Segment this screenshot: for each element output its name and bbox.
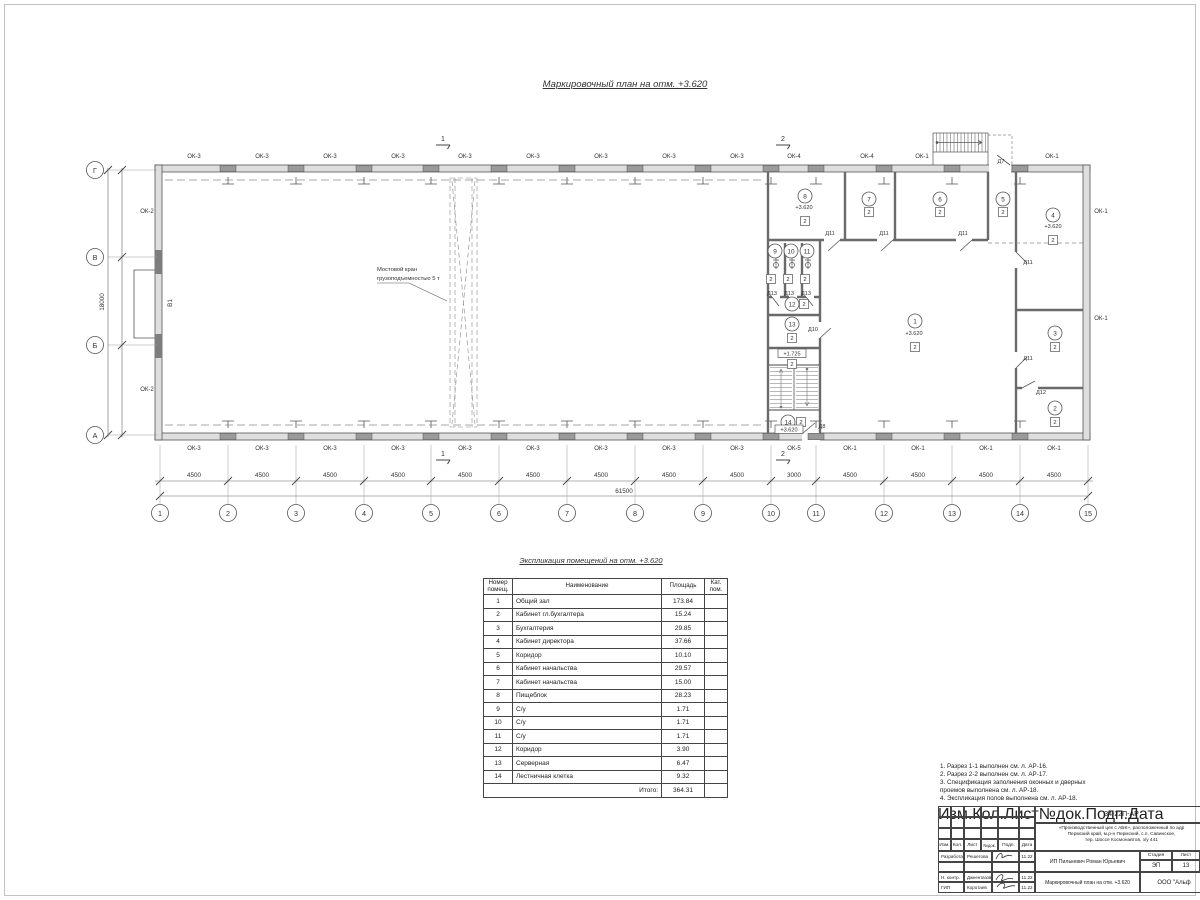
window-label: ОК-4 <box>860 154 874 160</box>
cell-number: 7 <box>484 676 513 690</box>
room-number-bubble: 4 <box>1046 208 1060 222</box>
doc-number: 34-22П-АР <box>1035 806 1200 823</box>
room-category: 2 <box>800 300 809 309</box>
room-number-bubble: 3 <box>1048 326 1062 340</box>
pier <box>220 165 236 439</box>
cell-name: Кабинет начальства <box>513 662 662 676</box>
svg-text:2: 2 <box>769 277 772 283</box>
cell-cat <box>705 635 728 649</box>
date-gip: 11.22 <box>1019 882 1035 893</box>
svg-text:2: 2 <box>1051 238 1054 244</box>
cell-name: Общий зал <box>513 595 662 609</box>
room-category: 2 <box>767 275 776 284</box>
dimension-label: 4500 <box>594 472 609 479</box>
note-item: 1. Разрез 1-1 выполнен см. л. АР-16. <box>940 763 1196 771</box>
svg-text:3: 3 <box>294 509 298 518</box>
window-label: ОК-3 <box>255 446 269 452</box>
explication-table: Номер помещ. Наименование Площадь Кат. п… <box>483 578 728 798</box>
window-label: ОК-3 <box>594 154 608 160</box>
cell-cat <box>705 622 728 636</box>
table-row: 14 Лестничная клетка 9.32 <box>484 770 728 784</box>
cell-cat <box>705 770 728 784</box>
col-header-cat: Кат. пом. <box>705 579 728 595</box>
cell-number: 14 <box>484 770 513 784</box>
door-label: Д11 <box>958 231 968 237</box>
sheet-label: Лист <box>1172 851 1200 860</box>
cell-number: 1 <box>484 595 513 609</box>
window-label: ОК-3 <box>187 446 201 452</box>
door-label: Д10 <box>808 327 818 333</box>
svg-text:4: 4 <box>362 509 366 518</box>
dimension-label: 3000 <box>787 472 802 479</box>
svg-text:+3.620: +3.620 <box>780 428 797 434</box>
cell-name: С/у <box>513 730 662 744</box>
date-ncontr: 11.22 <box>1019 872 1035 882</box>
svg-text:2: 2 <box>1053 420 1056 426</box>
axis-bubble: 14 <box>1012 445 1029 522</box>
table-row: 10 С/у 1.71 <box>484 716 728 730</box>
windows-bottom: ОК-3ОК-3ОК-3ОК-3ОК-3ОК-3ОК-3ОК-3ОК-3ОК-5… <box>187 446 1061 452</box>
svg-text:2: 2 <box>786 277 789 283</box>
elevation-label-boxed: +3.620 <box>775 425 803 434</box>
cell-cat <box>705 662 728 676</box>
name-ncontr: Джеентазов <box>964 872 992 882</box>
role-developer: Разработал <box>938 851 964 862</box>
dimension-label: 4500 <box>662 472 677 479</box>
axis-bubble: 2 <box>220 445 237 522</box>
svg-text:7: 7 <box>867 196 871 203</box>
door-label: Д13 <box>801 291 811 297</box>
window-label: ОК-3 <box>323 446 337 452</box>
exterior-walls <box>155 165 1090 440</box>
total-row: Итого: 364.31 <box>484 784 728 798</box>
hdr-kol: Кол. <box>951 839 964 851</box>
room-category: 2 <box>801 217 810 226</box>
room-number-bubble: 1 <box>908 314 922 328</box>
plan-title: Маркировочный план на отм. +3.620 <box>455 79 795 90</box>
svg-text:2: 2 <box>913 345 916 351</box>
sheet-value: 13 <box>1172 860 1200 872</box>
cell-number: 4 <box>484 635 513 649</box>
hdr-izm: Изм. <box>938 839 951 851</box>
cell-name: Бухгалтерия <box>513 622 662 636</box>
svg-text:4: 4 <box>1051 212 1055 219</box>
cell-cat <box>705 743 728 757</box>
role-gip: ГИП <box>938 882 964 893</box>
door-label: Д11 <box>1023 260 1033 266</box>
explication-title: Экспликация помещений на отм. +3.620 <box>480 556 702 565</box>
room-category: 2 <box>788 334 797 343</box>
dimension-label: 4500 <box>1047 472 1062 479</box>
table-row: 6 Кабинет начальства 29.57 <box>484 662 728 676</box>
signature-squiggle <box>992 870 1020 893</box>
window-label: ОК-3 <box>662 446 676 452</box>
svg-text:2: 2 <box>803 277 806 283</box>
axis-bubble: 5 <box>423 445 440 522</box>
col-header-area: Площадь <box>662 579 705 595</box>
svg-text:12: 12 <box>788 301 796 308</box>
svg-text:2: 2 <box>781 136 785 143</box>
cell-name: Кабинет начальства <box>513 676 662 690</box>
dimension-label: 4500 <box>255 472 270 479</box>
svg-text:13: 13 <box>948 509 956 518</box>
svg-text:7: 7 <box>565 509 569 518</box>
gate-v1: В1 <box>134 250 174 358</box>
cell-cat <box>705 689 728 703</box>
section-marks: 1 1 2 2 <box>436 136 790 464</box>
cell-area: 9.32 <box>662 770 705 784</box>
stairs <box>770 365 818 410</box>
cell-area: 28.23 <box>662 689 705 703</box>
dimension-label: 4500 <box>979 472 994 479</box>
window-label: ОК-3 <box>730 154 744 160</box>
window-label: ОК-5 <box>787 446 801 452</box>
crane-rails <box>165 135 1083 427</box>
window-label: ОК-1 <box>1045 154 1059 160</box>
room-category: 2 <box>911 343 920 352</box>
window-label: ОК-3 <box>526 154 540 160</box>
room-number-bubble: 12 <box>785 297 799 311</box>
table-row: 11 С/у 1.71 <box>484 730 728 744</box>
pier <box>695 165 711 439</box>
cell-area: 173.84 <box>662 595 705 609</box>
window-label: ОК-3 <box>730 446 744 452</box>
axis-bubble: 9 <box>695 445 712 522</box>
window-label: ОК-1 <box>1047 446 1061 452</box>
cell-area: 1.71 <box>662 716 705 730</box>
svg-text:2: 2 <box>1001 210 1004 216</box>
window-label: ОК-1 <box>911 446 925 452</box>
svg-text:2: 2 <box>790 362 793 368</box>
door-label: Д13 <box>784 291 794 297</box>
cell-area: 6.47 <box>662 757 705 771</box>
svg-text:14: 14 <box>1016 509 1024 518</box>
explication-header: Номер помещ. Наименование Площадь Кат. п… <box>484 579 728 595</box>
cell-area: 10.10 <box>662 649 705 663</box>
axis-bubble: 12 <box>876 445 893 522</box>
total-label: Итого: <box>484 784 662 798</box>
cell-area: 37.66 <box>662 635 705 649</box>
cell-cat <box>705 649 728 663</box>
total-value: 364.31 <box>662 784 705 798</box>
cell-number: 11 <box>484 730 513 744</box>
cell-cat <box>705 757 728 771</box>
pier <box>491 165 507 439</box>
dims-bottom: 4500450045004500450045004500450045003000… <box>187 472 1062 479</box>
room-category: 2 <box>784 275 793 284</box>
cell-number: 5 <box>484 649 513 663</box>
crane-annotation: Мостовой кран грузоподъемностью 5 т <box>377 266 447 301</box>
door-label: Д11 <box>879 231 889 237</box>
axis-bubble: 15 <box>1080 445 1097 522</box>
table-row: 5 Коридор 10.10 <box>484 649 728 663</box>
room-number-bubble: 6 <box>933 192 947 206</box>
room-category: 2 <box>1051 418 1060 427</box>
room-category: 2 <box>1049 236 1058 245</box>
axis-bubble: 11 <box>808 445 825 522</box>
svg-text:2: 2 <box>803 219 806 225</box>
date-developer: 11.22 <box>1019 851 1035 862</box>
window-label: ОК-3 <box>391 154 405 160</box>
svg-text:6: 6 <box>497 509 501 518</box>
door-label: Д7 <box>998 159 1005 165</box>
cell-name: Коридор <box>513 743 662 757</box>
room-number-bubble: 5 <box>996 192 1010 206</box>
door-label: Д13 <box>767 291 777 297</box>
total-dimension-bottom: 61500 <box>615 488 633 495</box>
room-number-bubble: 13 <box>785 317 799 331</box>
wall-openings <box>802 164 1011 441</box>
axes-bottom: 1 2 3 4 5 6 <box>152 445 1097 522</box>
room-category: 2 <box>801 275 810 284</box>
cell-number: 13 <box>484 757 513 771</box>
table-row: 12 Коридор 3.90 <box>484 743 728 757</box>
svg-text:2: 2 <box>781 451 785 458</box>
crane-note-line2: грузоподъемностью 5 т <box>377 276 440 282</box>
dimension-label: 4500 <box>730 472 745 479</box>
dimension-label: 4500 <box>187 472 202 479</box>
window-label: ОК-1 <box>1094 209 1108 215</box>
room-category: 2 <box>788 360 797 369</box>
sheet-title: Маркировочный план на отм. +3.620 <box>1035 872 1140 893</box>
window-label: ОК-2 <box>140 209 154 215</box>
explication-body: 1 Общий зал 173.84 2 Кабинет гл.бухгалте… <box>484 595 728 784</box>
table-row: 7 Кабинет начальства 15.00 <box>484 676 728 690</box>
cell-area: 3.90 <box>662 743 705 757</box>
windows-top: ОК-3ОК-3ОК-3ОК-3ОК-3ОК-3ОК-3ОК-3ОК-3ОК-4… <box>187 154 1059 160</box>
window-label: ОК-3 <box>187 154 201 160</box>
wc-fixtures <box>773 257 811 269</box>
cell-number: 6 <box>484 662 513 676</box>
svg-text:15: 15 <box>1084 509 1092 518</box>
section-mark: 1 <box>436 136 450 149</box>
svg-text:+1.725: +1.725 <box>783 352 800 358</box>
room-category: 2 <box>999 208 1008 217</box>
svg-text:Г: Г <box>93 166 97 175</box>
name-gip: Коротаев <box>964 882 992 893</box>
svg-text:5: 5 <box>429 509 433 518</box>
project-line3: тер. Шоссе Космонавтов, з/у 441 <box>1036 838 1200 844</box>
svg-text:1: 1 <box>158 509 162 518</box>
cell-name: Кабинет гл.бухгалтера <box>513 608 662 622</box>
table-row: 4 Кабинет директора 37.66 <box>484 635 728 649</box>
window-label: ОК-3 <box>458 446 472 452</box>
window-label: ОК-3 <box>662 154 676 160</box>
axis-bubble: 3 <box>288 445 305 522</box>
dimension-label: 4500 <box>843 472 858 479</box>
door-label: Д12 <box>1036 390 1046 396</box>
window-label: ОК-3 <box>458 154 472 160</box>
cell-name: Лестничная клетка <box>513 770 662 784</box>
axis-bubble: 1 <box>152 445 169 522</box>
table-row: 9 С/у 1.71 <box>484 703 728 717</box>
note-item: 2. Разрез 2-2 выполнен см. л. АР-17. <box>940 771 1196 779</box>
cell-number: 9 <box>484 703 513 717</box>
window-label: ОК-1 <box>843 446 857 452</box>
total-dimension-left: 18000 <box>99 293 106 311</box>
window-label: ОК-3 <box>391 446 405 452</box>
table-row: 3 Бухгалтерия 29.85 <box>484 622 728 636</box>
svg-text:13: 13 <box>788 321 796 328</box>
client: ИП Пилькевич Роман Юрьевич <box>1035 851 1140 872</box>
svg-text:1: 1 <box>441 451 445 458</box>
pier <box>627 165 643 439</box>
cell-number: 8 <box>484 689 513 703</box>
col-header-name: Наименование <box>513 579 662 595</box>
role-ncontr: Н. контр. <box>938 872 964 882</box>
window-label: ОК-1 <box>1094 316 1108 322</box>
table-row: 8 Пищеблок 28.23 <box>484 689 728 703</box>
pier <box>356 165 372 439</box>
room-number-bubble: 2 <box>1048 401 1062 415</box>
svg-text:2: 2 <box>790 336 793 342</box>
wall-piers <box>220 165 1028 439</box>
floor-plan: Мостовой кран грузоподъемностью 5 т В1 <box>85 110 1115 535</box>
table-row: 1 Общий зал 173.84 <box>484 595 728 609</box>
axis-bubble: 7 <box>559 445 576 522</box>
name-developer: Решетова <box>964 851 992 862</box>
svg-text:8: 8 <box>633 509 637 518</box>
cell-number: 10 <box>484 716 513 730</box>
svg-text:1: 1 <box>913 318 917 325</box>
pier <box>876 165 892 439</box>
window-label: ОК-4 <box>787 154 801 160</box>
door-label: Д8 <box>819 424 826 430</box>
door-label: Д11 <box>825 231 835 237</box>
cell-cat <box>705 595 728 609</box>
svg-text:12: 12 <box>880 509 888 518</box>
svg-text:В: В <box>93 253 98 262</box>
signature-squiggle <box>993 850 1019 862</box>
stage-value: ЭП <box>1140 860 1172 872</box>
window-label: ОК-1 <box>979 446 993 452</box>
svg-text:2: 2 <box>802 302 805 308</box>
pier <box>559 165 575 439</box>
note-item: 4. Экспликация полов выполнена см. л. АР… <box>940 795 1196 803</box>
svg-text:9: 9 <box>701 509 705 518</box>
svg-text:10: 10 <box>787 248 795 255</box>
cell-name: Коридор <box>513 649 662 663</box>
cell-area: 15.00 <box>662 676 705 690</box>
table-row: 2 Кабинет гл.бухгалтера 15.24 <box>484 608 728 622</box>
elevation-label: +3.620 <box>905 331 922 337</box>
cell-area: 29.85 <box>662 622 705 636</box>
axis-bubble: 4 <box>356 445 373 522</box>
window-label: ОК-3 <box>526 446 540 452</box>
cell-cat <box>705 608 728 622</box>
section-mark: 1 <box>436 451 450 464</box>
axis-bubble: 6 <box>491 445 508 522</box>
svg-text:10: 10 <box>767 509 775 518</box>
svg-text:11: 11 <box>812 509 819 518</box>
pier <box>1012 165 1028 439</box>
window-label: ОК-3 <box>594 446 608 452</box>
titleblock: Изм.Кол.Лист№док.Подп.Дата Изм. Кол. Лис… <box>938 806 1200 893</box>
cell-area: 1.71 <box>662 730 705 744</box>
cell-cat <box>705 730 728 744</box>
svg-text:2: 2 <box>867 210 870 216</box>
axis-bubble: 8 <box>627 445 644 522</box>
pier <box>288 165 304 439</box>
external-stair <box>933 133 988 165</box>
dimension-label: 4500 <box>391 472 406 479</box>
crane-note-line1: Мостовой кран <box>377 266 417 273</box>
window-label: ОК-3 <box>255 154 269 160</box>
stage-label: Стадия <box>1140 851 1172 860</box>
pier <box>944 165 960 439</box>
elevation-label-boxed: +1.725 <box>778 349 806 358</box>
svg-text:Б: Б <box>93 341 98 350</box>
cell-cat <box>705 716 728 730</box>
cell-area: 29.57 <box>662 662 705 676</box>
room-number-bubble: 9 <box>768 244 782 258</box>
cell-name: Серверная <box>513 757 662 771</box>
table-row: 13 Серверная 6.47 <box>484 757 728 771</box>
room-number-bubble: 8 <box>798 189 812 203</box>
cell-cat <box>705 676 728 690</box>
svg-text:11: 11 <box>804 248 811 255</box>
section-mark: 2 <box>776 136 790 149</box>
cell-name: С/у <box>513 703 662 717</box>
dimension-label: 4500 <box>526 472 541 479</box>
project-line1: «Производственный цех с АБК», расположен… <box>1036 826 1200 832</box>
company: ООО "Альф <box>1140 872 1200 893</box>
window-label: ОК-1 <box>915 154 929 160</box>
svg-text:8: 8 <box>803 193 807 200</box>
dimension-label: 4500 <box>911 472 926 479</box>
pier <box>423 165 439 439</box>
cell-number: 3 <box>484 622 513 636</box>
svg-text:2: 2 <box>1053 345 1056 351</box>
cell-number: 2 <box>484 608 513 622</box>
cell-number: 12 <box>484 743 513 757</box>
window-label: ОК-2 <box>140 387 154 393</box>
room-category: 2 <box>1051 343 1060 352</box>
room-elevations: +3.620+3.620+3.620 <box>795 205 1061 337</box>
elevation-label: +3.620 <box>795 205 812 211</box>
room-category: 2 <box>936 208 945 217</box>
elevation-label: +3.620 <box>1044 224 1061 230</box>
room-category: 2 <box>865 208 874 217</box>
hdr-list: Лист <box>964 839 981 851</box>
svg-text:3: 3 <box>1053 330 1057 337</box>
svg-text:1: 1 <box>441 136 445 143</box>
room-number-bubble: 10 <box>784 244 798 258</box>
dimension-label: 4500 <box>458 472 473 479</box>
svg-text:А: А <box>93 431 98 440</box>
svg-text:2: 2 <box>938 210 941 216</box>
section-mark: 2 <box>776 451 790 464</box>
svg-text:9: 9 <box>773 248 777 255</box>
cell-name: С/у <box>513 716 662 730</box>
axis-bubble: 13 <box>944 445 961 522</box>
svg-text:2: 2 <box>226 509 230 518</box>
room-number-bubble: 11 <box>800 244 814 258</box>
svg-text:5: 5 <box>1001 196 1005 203</box>
cell-name: Пищеблок <box>513 689 662 703</box>
room-number-bubble: 7 <box>862 192 876 206</box>
cell-name: Кабинет директора <box>513 635 662 649</box>
cell-area: 1.71 <box>662 703 705 717</box>
window-label: ОК-3 <box>323 154 337 160</box>
gate-label: В1 <box>167 299 174 307</box>
notes: 1. Разрез 1-1 выполнен см. л. АР-16.2. Р… <box>940 763 1196 803</box>
axis-bubble: 10 <box>763 445 780 522</box>
svg-text:6: 6 <box>938 196 942 203</box>
svg-text:2: 2 <box>1053 405 1057 412</box>
cell-cat <box>705 703 728 717</box>
note-item: 3. Спецификация заполнения оконных и две… <box>940 779 1196 795</box>
